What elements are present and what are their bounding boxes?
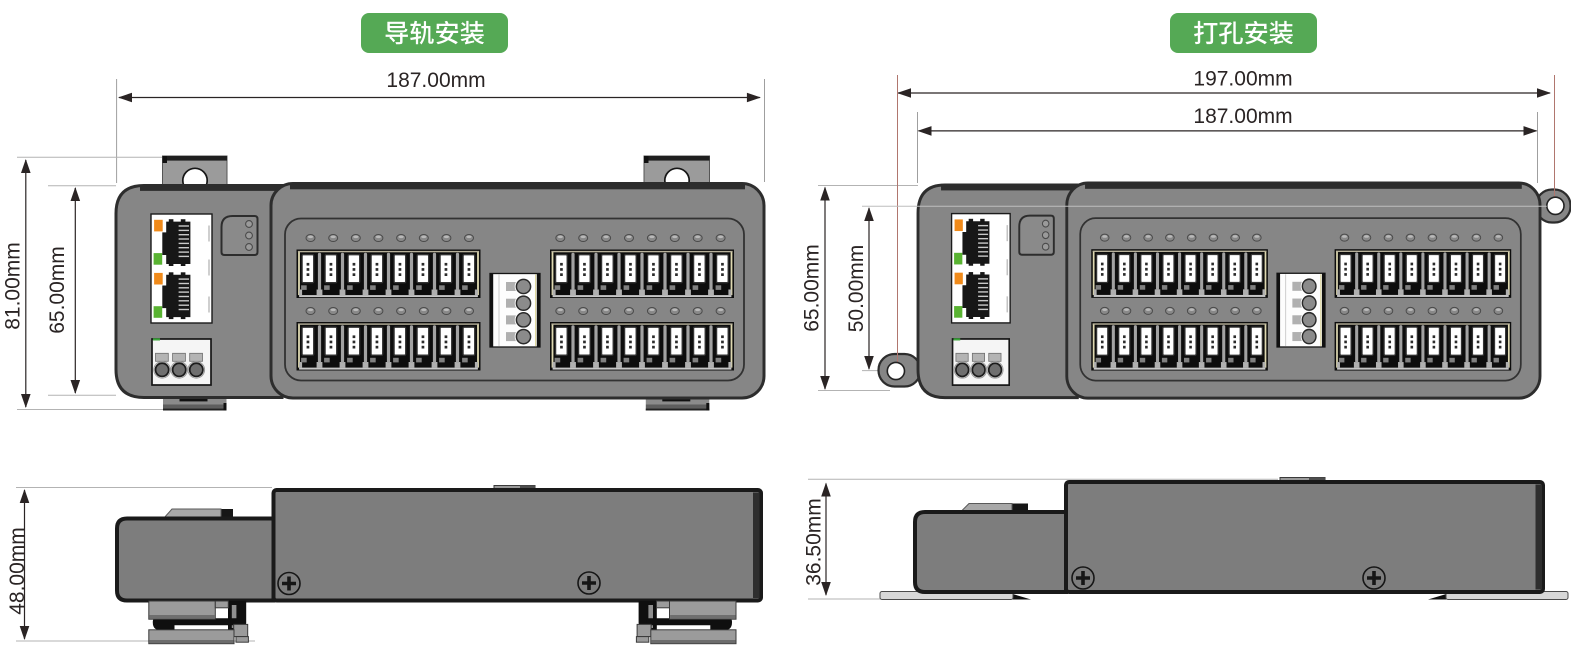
svg-text:81.00mm: 81.00mm (2, 242, 25, 330)
svg-text:187.00mm: 187.00mm (386, 69, 485, 92)
svg-text:50.00mm: 50.00mm (845, 245, 868, 333)
svg-text:36.50mm: 36.50mm (803, 498, 826, 586)
svg-text:65.00mm: 65.00mm (801, 244, 824, 332)
svg-text:65.00mm: 65.00mm (46, 246, 69, 334)
svg-text:187.00mm: 187.00mm (1193, 105, 1292, 128)
svg-text:197.00mm: 197.00mm (1193, 68, 1292, 91)
svg-text:48.00mm: 48.00mm (6, 527, 29, 615)
